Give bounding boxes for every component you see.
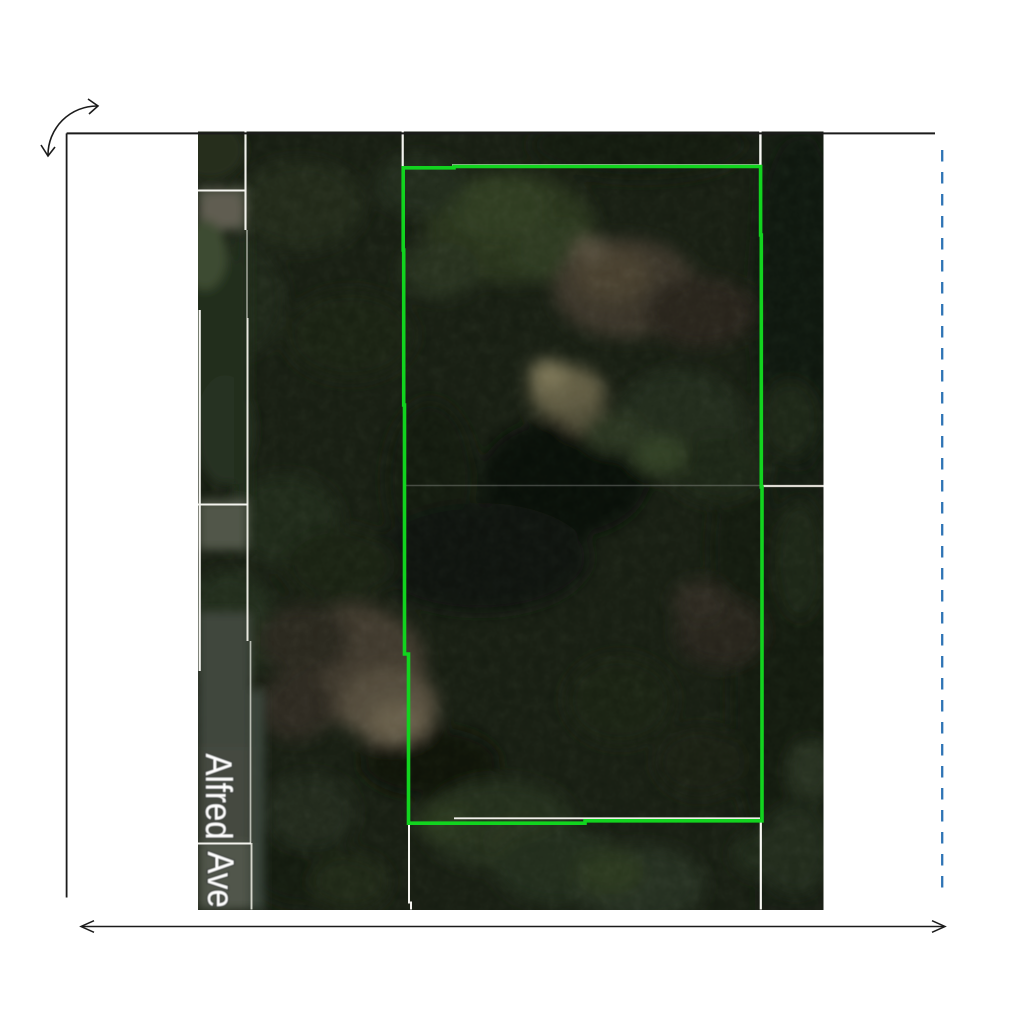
svg-text:Alfred: Alfred	[198, 754, 239, 840]
svg-text:Ave: Ave	[200, 852, 241, 908]
